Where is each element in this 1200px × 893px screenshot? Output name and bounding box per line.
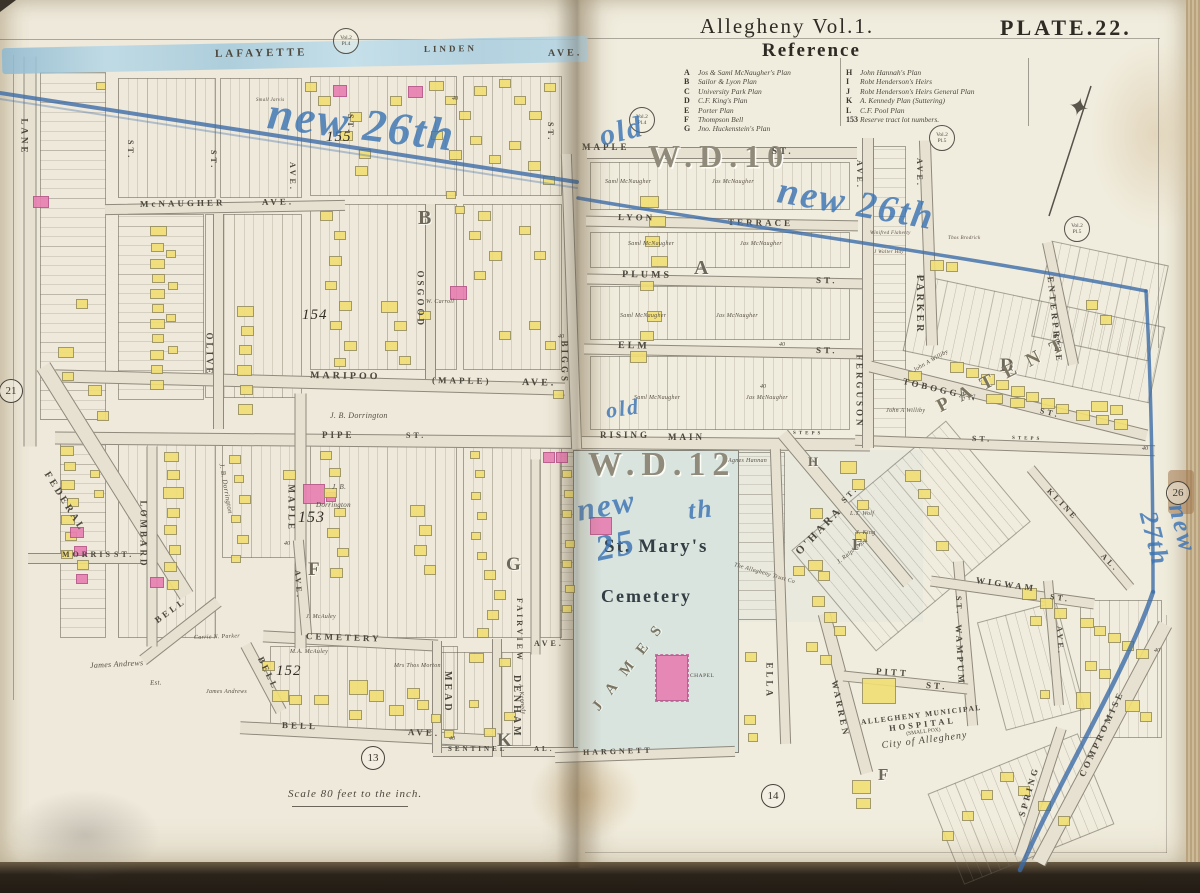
owner-label: Saml McNaugher: [628, 241, 674, 247]
street-label: ST.: [926, 681, 948, 691]
volume-plate-reference-circle: Vol.2Pl.5: [929, 125, 955, 151]
building-footprint: [744, 715, 756, 725]
building-footprint: [793, 566, 805, 576]
building-footprint: [446, 191, 456, 199]
building-footprint: [410, 505, 425, 517]
circled-plate-number: 14: [761, 784, 785, 808]
building-footprint: [544, 83, 556, 92]
building-footprint: [167, 470, 180, 480]
plan-letter: K: [497, 731, 513, 750]
building-footprint: [239, 495, 251, 504]
building-footprint: [499, 331, 511, 340]
building-footprint-pink: [150, 577, 164, 588]
building-footprint: [231, 555, 241, 563]
lot-width-number: 40: [760, 384, 766, 390]
building-footprint: [289, 695, 302, 705]
building-footprint: [325, 281, 337, 290]
building-footprint: [369, 690, 384, 702]
street-label: (MAPLE): [432, 376, 492, 386]
building-footprint: [812, 596, 825, 607]
building-footprint: [339, 301, 352, 311]
building-footprint: [565, 585, 575, 593]
cemetery-name-line2: Cemetery: [601, 586, 692, 607]
lot-width-number: 40: [1154, 648, 1160, 654]
building-footprint: [407, 688, 420, 699]
building-footprint: [166, 250, 176, 258]
building-footprint: [1094, 626, 1106, 636]
building-footprint: [529, 321, 541, 330]
circled-plate-number: 21: [0, 379, 23, 403]
building-footprint: [469, 700, 479, 708]
plan-letter: F: [308, 560, 321, 579]
building-footprint: [640, 196, 659, 208]
building-footprint: [414, 545, 427, 556]
building-footprint: [469, 231, 481, 240]
building-footprint: [240, 385, 253, 395]
owner-label: James Andrews: [206, 689, 247, 695]
building-footprint: [834, 626, 846, 636]
building-footprint-pink: [450, 286, 467, 300]
building-footprint: [167, 580, 179, 590]
building-footprint: [150, 319, 165, 329]
building-footprint: [528, 161, 541, 171]
building-footprint: [981, 790, 993, 800]
street-label: AVE.: [293, 570, 303, 600]
legend-key: 153: [846, 115, 860, 124]
building-footprint: [152, 274, 165, 283]
building-footprint: [562, 510, 572, 518]
building-footprint: [477, 628, 489, 638]
building-footprint: [150, 226, 167, 236]
lot-block: [118, 78, 216, 198]
building-footprint: [431, 714, 441, 723]
building-footprint: [806, 642, 818, 652]
block-number: 154: [302, 308, 328, 323]
building-footprint: [327, 528, 340, 538]
building-footprint: [320, 211, 333, 221]
building-footprint: [167, 508, 180, 518]
plan-letter: B: [418, 208, 432, 228]
building-footprint: [1125, 700, 1140, 712]
building-footprint: [808, 560, 823, 571]
building-footprint: [168, 282, 178, 290]
building-footprint-pink: [33, 196, 49, 208]
building-footprint: [562, 470, 572, 478]
building-footprint: [455, 206, 465, 214]
building-footprint: [1054, 608, 1067, 619]
building-footprint: [1122, 641, 1134, 651]
reference-heading: Reference: [762, 40, 861, 62]
building-footprint: [429, 81, 444, 91]
building-footprint: [484, 570, 496, 580]
building-footprint: [630, 351, 647, 363]
building-footprint: [477, 512, 487, 520]
street-label: ST.: [972, 435, 992, 444]
building-footprint: [824, 612, 837, 623]
street-label: ELLA: [765, 663, 774, 700]
owner-label: J. B.: [332, 484, 346, 491]
street-label: AVE.: [408, 728, 440, 738]
owner-label: J. McAuley: [306, 614, 336, 620]
building-footprint: [152, 334, 164, 343]
building-footprint: [1099, 669, 1111, 679]
building-footprint: [962, 811, 974, 821]
building-footprint: [164, 562, 177, 572]
vol-ref-line2: Pl.5: [1073, 229, 1082, 235]
building-footprint: [76, 299, 88, 309]
building-footprint: [852, 780, 871, 794]
plan-letter: A: [694, 258, 709, 278]
building-footprint: [337, 548, 349, 557]
handwriting-annotation: 25: [592, 520, 640, 569]
street-label: ST.: [772, 147, 794, 156]
street-label: MEAD: [442, 671, 452, 714]
street-label: ST.: [406, 432, 426, 440]
building-footprint: [237, 535, 249, 544]
owner-label: J. B. Dorrington: [330, 412, 388, 420]
building-footprint-pink: [656, 655, 688, 701]
plan-letter: H: [808, 455, 819, 468]
building-footprint: [231, 515, 241, 523]
building-footprint: [329, 468, 341, 477]
owner-label: Dorrington: [316, 502, 351, 509]
building-footprint: [330, 568, 343, 578]
building-footprint: [564, 490, 574, 498]
block-number: 152: [276, 664, 302, 679]
building-footprint: [942, 831, 954, 841]
building-footprint: [474, 86, 487, 96]
building-footprint: [417, 700, 429, 710]
building-footprint: [1080, 618, 1094, 628]
building-footprint: [151, 365, 163, 374]
plate-volume-title: Allegheny Vol.1.: [700, 14, 874, 39]
handwriting-annotation: old: [604, 393, 641, 423]
building-footprint: [1000, 772, 1014, 782]
building-footprint: [229, 455, 241, 464]
street-label: PARKER: [914, 275, 924, 334]
street-label: AVE.: [915, 158, 923, 188]
building-footprint: [1076, 692, 1091, 709]
street-strip: [425, 204, 436, 379]
building-footprint: [862, 678, 896, 704]
street-label: LOMBARD: [139, 501, 148, 569]
plan-letter: G: [506, 555, 522, 574]
building-footprint: [355, 166, 368, 176]
owner-label: Est.: [150, 679, 162, 687]
building-footprint: [930, 260, 944, 271]
building-footprint: [565, 540, 575, 548]
building-footprint: [946, 262, 958, 272]
building-footprint: [329, 256, 342, 266]
building-footprint: [562, 560, 572, 568]
street-label: BELL: [282, 721, 318, 731]
building-footprint: [936, 541, 949, 551]
building-footprint: [399, 356, 411, 365]
building-footprint: [320, 451, 332, 460]
building-footprint: [840, 461, 857, 474]
building-footprint: [1030, 616, 1042, 626]
building-footprint: [1038, 801, 1051, 811]
legend-key: G: [684, 124, 698, 133]
street-label: AVE.: [1055, 626, 1065, 656]
building-footprint: [64, 462, 76, 471]
building-footprint: [810, 508, 823, 519]
building-footprint: [150, 350, 164, 360]
building-footprint: [640, 281, 654, 291]
building-footprint: [169, 545, 181, 555]
building-footprint: [88, 385, 102, 396]
building-footprint: [168, 346, 178, 354]
lot-width-number: 40: [449, 736, 455, 742]
building-footprint: [818, 571, 830, 581]
building-footprint: [927, 506, 939, 516]
building-footprint: [748, 733, 758, 742]
building-footprint: [150, 259, 165, 269]
owner-label: Jas McNaugher: [746, 395, 788, 401]
street-label: LYON: [618, 213, 655, 223]
building-footprint: [534, 251, 546, 260]
building-footprint: [489, 251, 502, 261]
street-label: ST.: [816, 276, 838, 285]
building-footprint: [470, 136, 482, 145]
lot-block: [590, 232, 850, 268]
owner-label: L.T. Wolf: [850, 511, 874, 517]
building-footprint: [459, 111, 471, 120]
vol-ref-line2: Pl.4: [342, 41, 351, 47]
building-footprint: [484, 728, 496, 737]
building-footprint: [905, 470, 921, 482]
building-footprint: [237, 365, 252, 376]
building-footprint: [349, 680, 368, 695]
building-footprint: [543, 176, 555, 185]
street-label: OSGOOD: [416, 271, 425, 329]
street-label: ST.: [126, 140, 134, 160]
street-label: LANE: [20, 119, 29, 156]
lot-width-number: 40: [1142, 446, 1148, 452]
building-footprint: [469, 653, 484, 663]
building-footprint: [1100, 315, 1112, 325]
building-footprint: [471, 532, 481, 540]
building-footprint: [334, 358, 346, 367]
building-footprint: [163, 487, 184, 499]
building-footprint: [152, 304, 164, 313]
handwriting-annotation: th: [686, 493, 715, 526]
building-footprint: [239, 345, 252, 355]
building-footprint: [1011, 386, 1025, 397]
plate-border: [1166, 615, 1167, 853]
lot-width-number: 40: [779, 342, 785, 348]
street-label: McNAUGHER: [140, 199, 226, 209]
street-label: FERGUSON: [855, 355, 864, 429]
building-footprint: [519, 226, 531, 235]
street-label: ST.: [114, 551, 134, 559]
building-footprint: [314, 695, 329, 705]
owner-label: Saml McNaugher: [634, 395, 680, 401]
building-footprint: [478, 211, 491, 221]
building-footprint: [1114, 419, 1128, 430]
building-footprint-pink: [76, 574, 88, 584]
street-label: ST.: [546, 122, 554, 142]
building-footprint: [1096, 415, 1109, 425]
legend-divider: [1028, 58, 1029, 126]
street-strip: [530, 460, 540, 655]
street-label: MORRIS: [62, 551, 113, 559]
building-footprint: [424, 565, 436, 575]
owner-label: Jas McNaugher: [712, 179, 754, 185]
legend-plan-name: Reserve tract lot numbers.: [860, 115, 939, 124]
building-footprint: [499, 79, 511, 88]
building-footprint: [1026, 392, 1039, 402]
building-footprint: [494, 590, 506, 600]
building-footprint: [90, 470, 100, 478]
street-label: PLUMS: [622, 270, 672, 281]
owner-label: Agnes Hannan: [728, 458, 767, 464]
building-footprint: [857, 500, 869, 510]
building-footprint: [856, 798, 871, 809]
street-label: MARIPOO: [310, 371, 381, 382]
building-footprint: [94, 490, 104, 498]
plate-border: [585, 852, 1167, 853]
ward-12-label: W.D.12: [588, 446, 736, 484]
building-footprint: [96, 82, 106, 90]
building-footprint: [477, 552, 487, 560]
legend-divider: [840, 58, 841, 126]
building-footprint: [389, 705, 404, 716]
building-footprint: [283, 470, 296, 480]
building-footprint: [471, 492, 481, 500]
street-label: WAMPUM: [954, 624, 966, 686]
building-footprint: [562, 605, 572, 613]
building-footprint: [1136, 649, 1149, 659]
plate-border: [13, 55, 14, 700]
building-footprint: [238, 404, 253, 415]
legend-row: GJno. Huckenstein's Plan: [684, 118, 770, 136]
street-label: AVE.: [534, 640, 564, 648]
owner-label: Mrs Thos Morton: [394, 663, 441, 669]
street-label: STEPS: [793, 431, 823, 437]
building-footprint: [241, 326, 254, 336]
legend-plan-name: Jno. Huckenstein's Plan: [698, 124, 770, 133]
building-footprint: [97, 411, 109, 421]
building-footprint: [487, 610, 499, 620]
owner-label: J Walter Hay: [874, 250, 904, 255]
building-footprint: [1058, 816, 1070, 826]
street-label: FAIRVIEW: [515, 598, 523, 663]
building-footprint: [334, 231, 346, 240]
lot-width-number: 40: [558, 334, 564, 340]
plate-number: PLATE.22.: [1000, 15, 1132, 41]
street-strip: [213, 214, 224, 429]
street-label: ELM: [618, 341, 650, 352]
building-footprint: [150, 289, 165, 299]
building-footprint: [1085, 661, 1097, 671]
building-footprint: [164, 452, 179, 462]
street-label: BIGGS: [560, 341, 569, 385]
building-footprint: [651, 256, 668, 267]
owner-label: W. Carroll: [426, 299, 454, 305]
vol-ref-line2: Pl.5: [938, 138, 947, 144]
building-footprint: [529, 111, 542, 120]
building-footprint: [1091, 401, 1108, 412]
lot-width-number: 40: [452, 96, 458, 102]
building-footprint: [514, 96, 526, 105]
street-label: ST.: [816, 346, 838, 355]
street-label: LAFAYETTE: [215, 47, 308, 60]
building-footprint: [950, 362, 964, 373]
owner-label: John A Williby: [886, 408, 925, 414]
building-footprint: [344, 341, 357, 351]
owner-label: Saml McNaugher: [620, 313, 666, 319]
plan-letter: F: [852, 536, 863, 553]
building-footprint: [330, 321, 342, 330]
building-footprint: [334, 508, 346, 517]
street-label: RISING: [600, 431, 650, 440]
volume-plate-reference-circle: Vol.2Pl.4: [333, 28, 359, 54]
building-footprint: [553, 390, 564, 399]
building-footprint: [820, 655, 832, 665]
building-footprint: [489, 155, 501, 164]
owner-label: Saml McNaugher: [605, 179, 651, 185]
building-footprint: [1086, 300, 1098, 310]
street-label: PIPE: [322, 431, 355, 440]
chapel-label: CHAPEL: [690, 673, 714, 679]
building-footprint: [475, 470, 485, 478]
street-label: OLIVE: [205, 333, 214, 377]
building-footprint: [58, 347, 74, 358]
building-footprint: [419, 525, 432, 536]
owner-label: Jas McNaugher: [716, 313, 758, 319]
building-footprint: [150, 380, 164, 390]
building-footprint: [1108, 633, 1121, 643]
building-footprint: [151, 243, 164, 252]
street-label: AL.: [534, 746, 554, 753]
street-strip: [24, 56, 37, 446]
book-cover-edge: [0, 862, 1200, 893]
building-footprint: [385, 341, 398, 351]
building-footprint: [1140, 712, 1152, 722]
street-label: STEPS: [1012, 436, 1042, 442]
volume-plate-reference-circle: Vol.2Pl.5: [1064, 216, 1090, 242]
building-footprint: [349, 710, 362, 720]
building-footprint: [509, 141, 521, 150]
street-label: AVE.: [262, 197, 294, 207]
building-footprint: [77, 560, 89, 570]
owner-label: Thos Brodrick: [948, 236, 980, 241]
building-footprint: [545, 341, 556, 350]
building-footprint: [1110, 405, 1123, 415]
lot-width-number: 40: [284, 541, 290, 547]
building-footprint: [381, 301, 398, 313]
building-footprint-pink: [556, 452, 568, 463]
plan-letter: F: [878, 766, 889, 783]
street-label: AVE.: [288, 162, 296, 192]
building-footprint: [470, 451, 480, 459]
scale-rule: [292, 806, 408, 807]
building-footprint: [499, 658, 511, 667]
building-footprint: [1040, 690, 1050, 699]
building-footprint-pink: [408, 86, 423, 98]
street-label: ST.: [209, 150, 217, 170]
building-footprint: [474, 271, 486, 280]
building-footprint: [234, 475, 244, 483]
ward-10-label: W.D.10: [648, 138, 790, 175]
building-footprint: [60, 446, 74, 456]
building-footprint: [166, 314, 176, 322]
street-label: MAPLE: [287, 485, 296, 533]
building-footprint: [1010, 398, 1025, 408]
legend-row: 153Reserve tract lot numbers.: [846, 109, 939, 127]
building-footprint: [986, 394, 1003, 404]
